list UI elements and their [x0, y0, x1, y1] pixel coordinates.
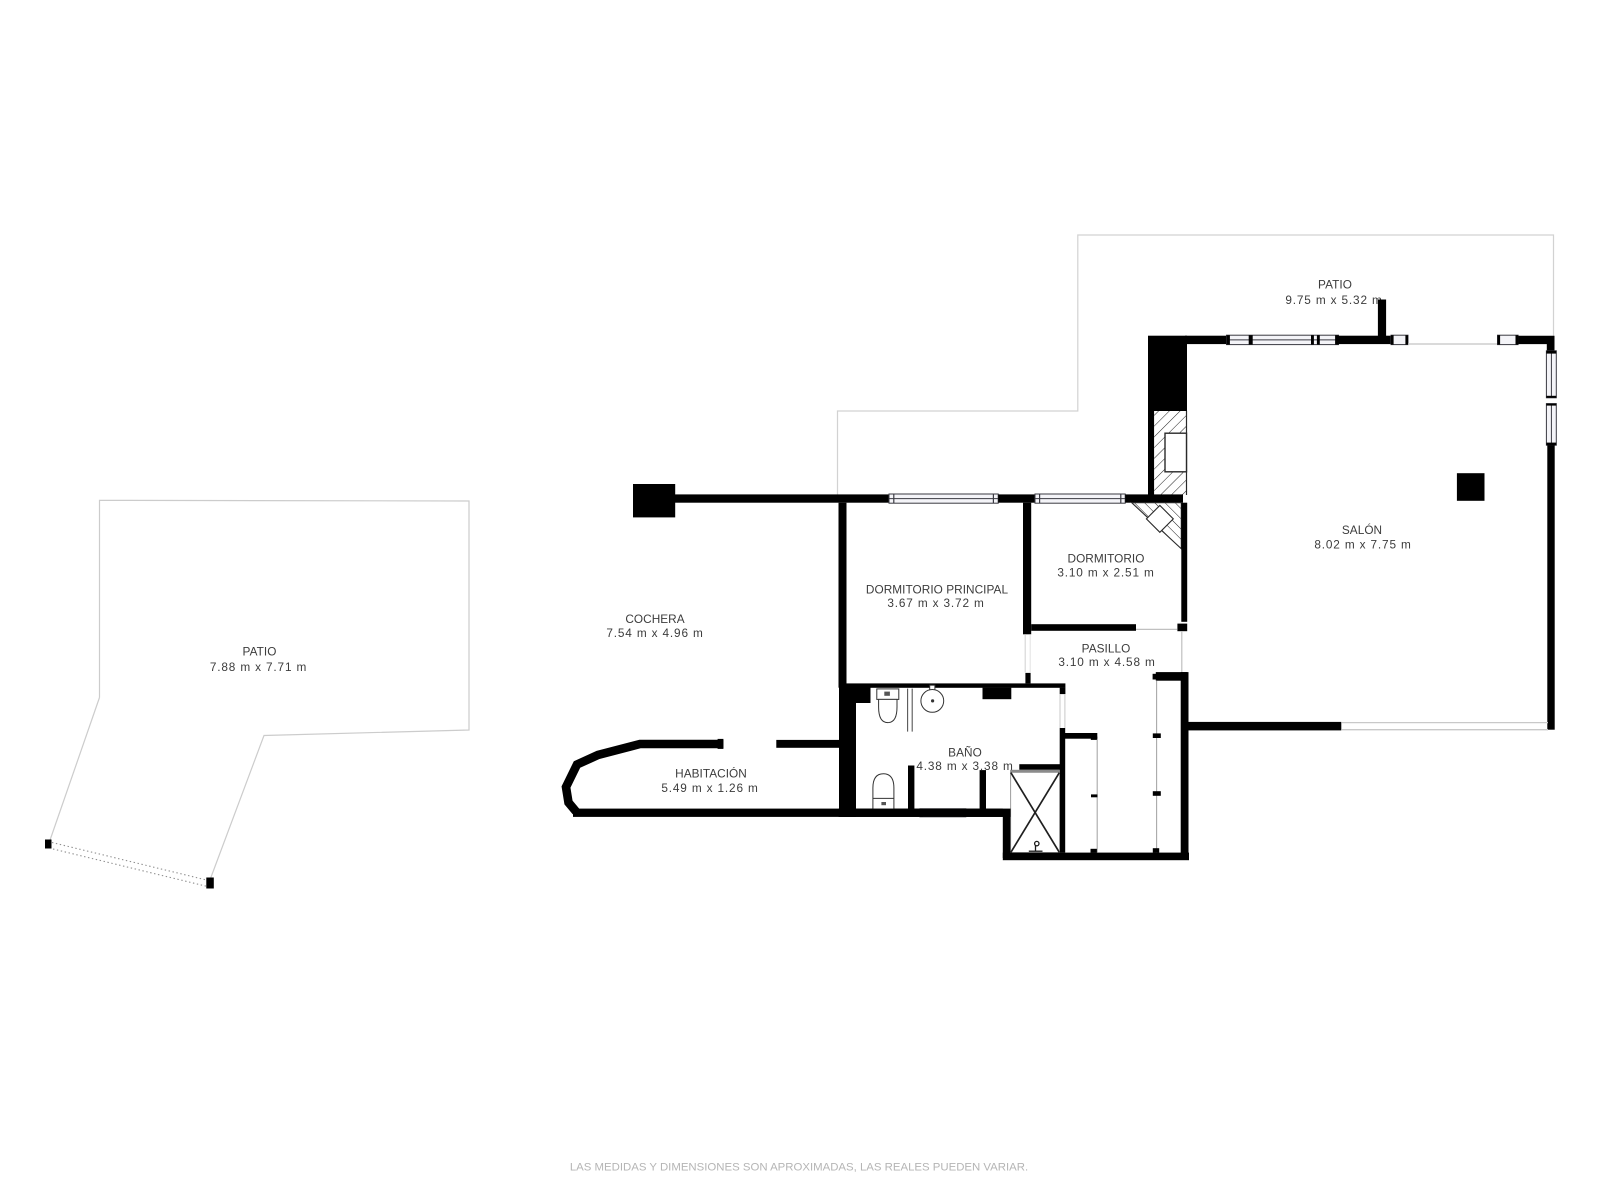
svg-text:HABITACIÓN: HABITACIÓN	[675, 767, 747, 781]
svg-text:PASILLO: PASILLO	[1082, 642, 1131, 656]
svg-text:SALÓN: SALÓN	[1342, 523, 1382, 537]
svg-text:3.10 m x 4.58 m: 3.10 m x 4.58 m	[1058, 655, 1155, 669]
svg-text:BAÑO: BAÑO	[948, 746, 982, 760]
svg-text:DORMITORIO: DORMITORIO	[1068, 552, 1145, 566]
svg-text:7.88 m x 7.71 m: 7.88 m x 7.71 m	[210, 660, 307, 674]
svg-text:COCHERA: COCHERA	[625, 612, 684, 626]
svg-text:5.49 m x 1.26 m: 5.49 m x 1.26 m	[661, 781, 758, 795]
svg-text:PATIO: PATIO	[243, 645, 277, 659]
svg-text:8.02 m x 7.75 m: 8.02 m x 7.75 m	[1314, 538, 1411, 552]
svg-text:DORMITORIO PRINCIPAL: DORMITORIO PRINCIPAL	[866, 583, 1009, 597]
svg-text:3.67 m x 3.72 m: 3.67 m x 3.72 m	[887, 596, 984, 610]
svg-text:4.38 m x 3.38 m: 4.38 m x 3.38 m	[916, 759, 1013, 773]
svg-text:3.10 m x 2.51 m: 3.10 m x 2.51 m	[1057, 566, 1154, 580]
svg-text:LAS MEDIDAS Y DIMENSIONES SON: LAS MEDIDAS Y DIMENSIONES SON APROXIMADA…	[570, 1162, 1028, 1174]
svg-text:7.54 m x 4.96 m: 7.54 m x 4.96 m	[606, 626, 703, 640]
svg-text:9.75 m x 5.32 m: 9.75 m x 5.32 m	[1285, 293, 1382, 307]
svg-text:PATIO: PATIO	[1318, 278, 1352, 292]
